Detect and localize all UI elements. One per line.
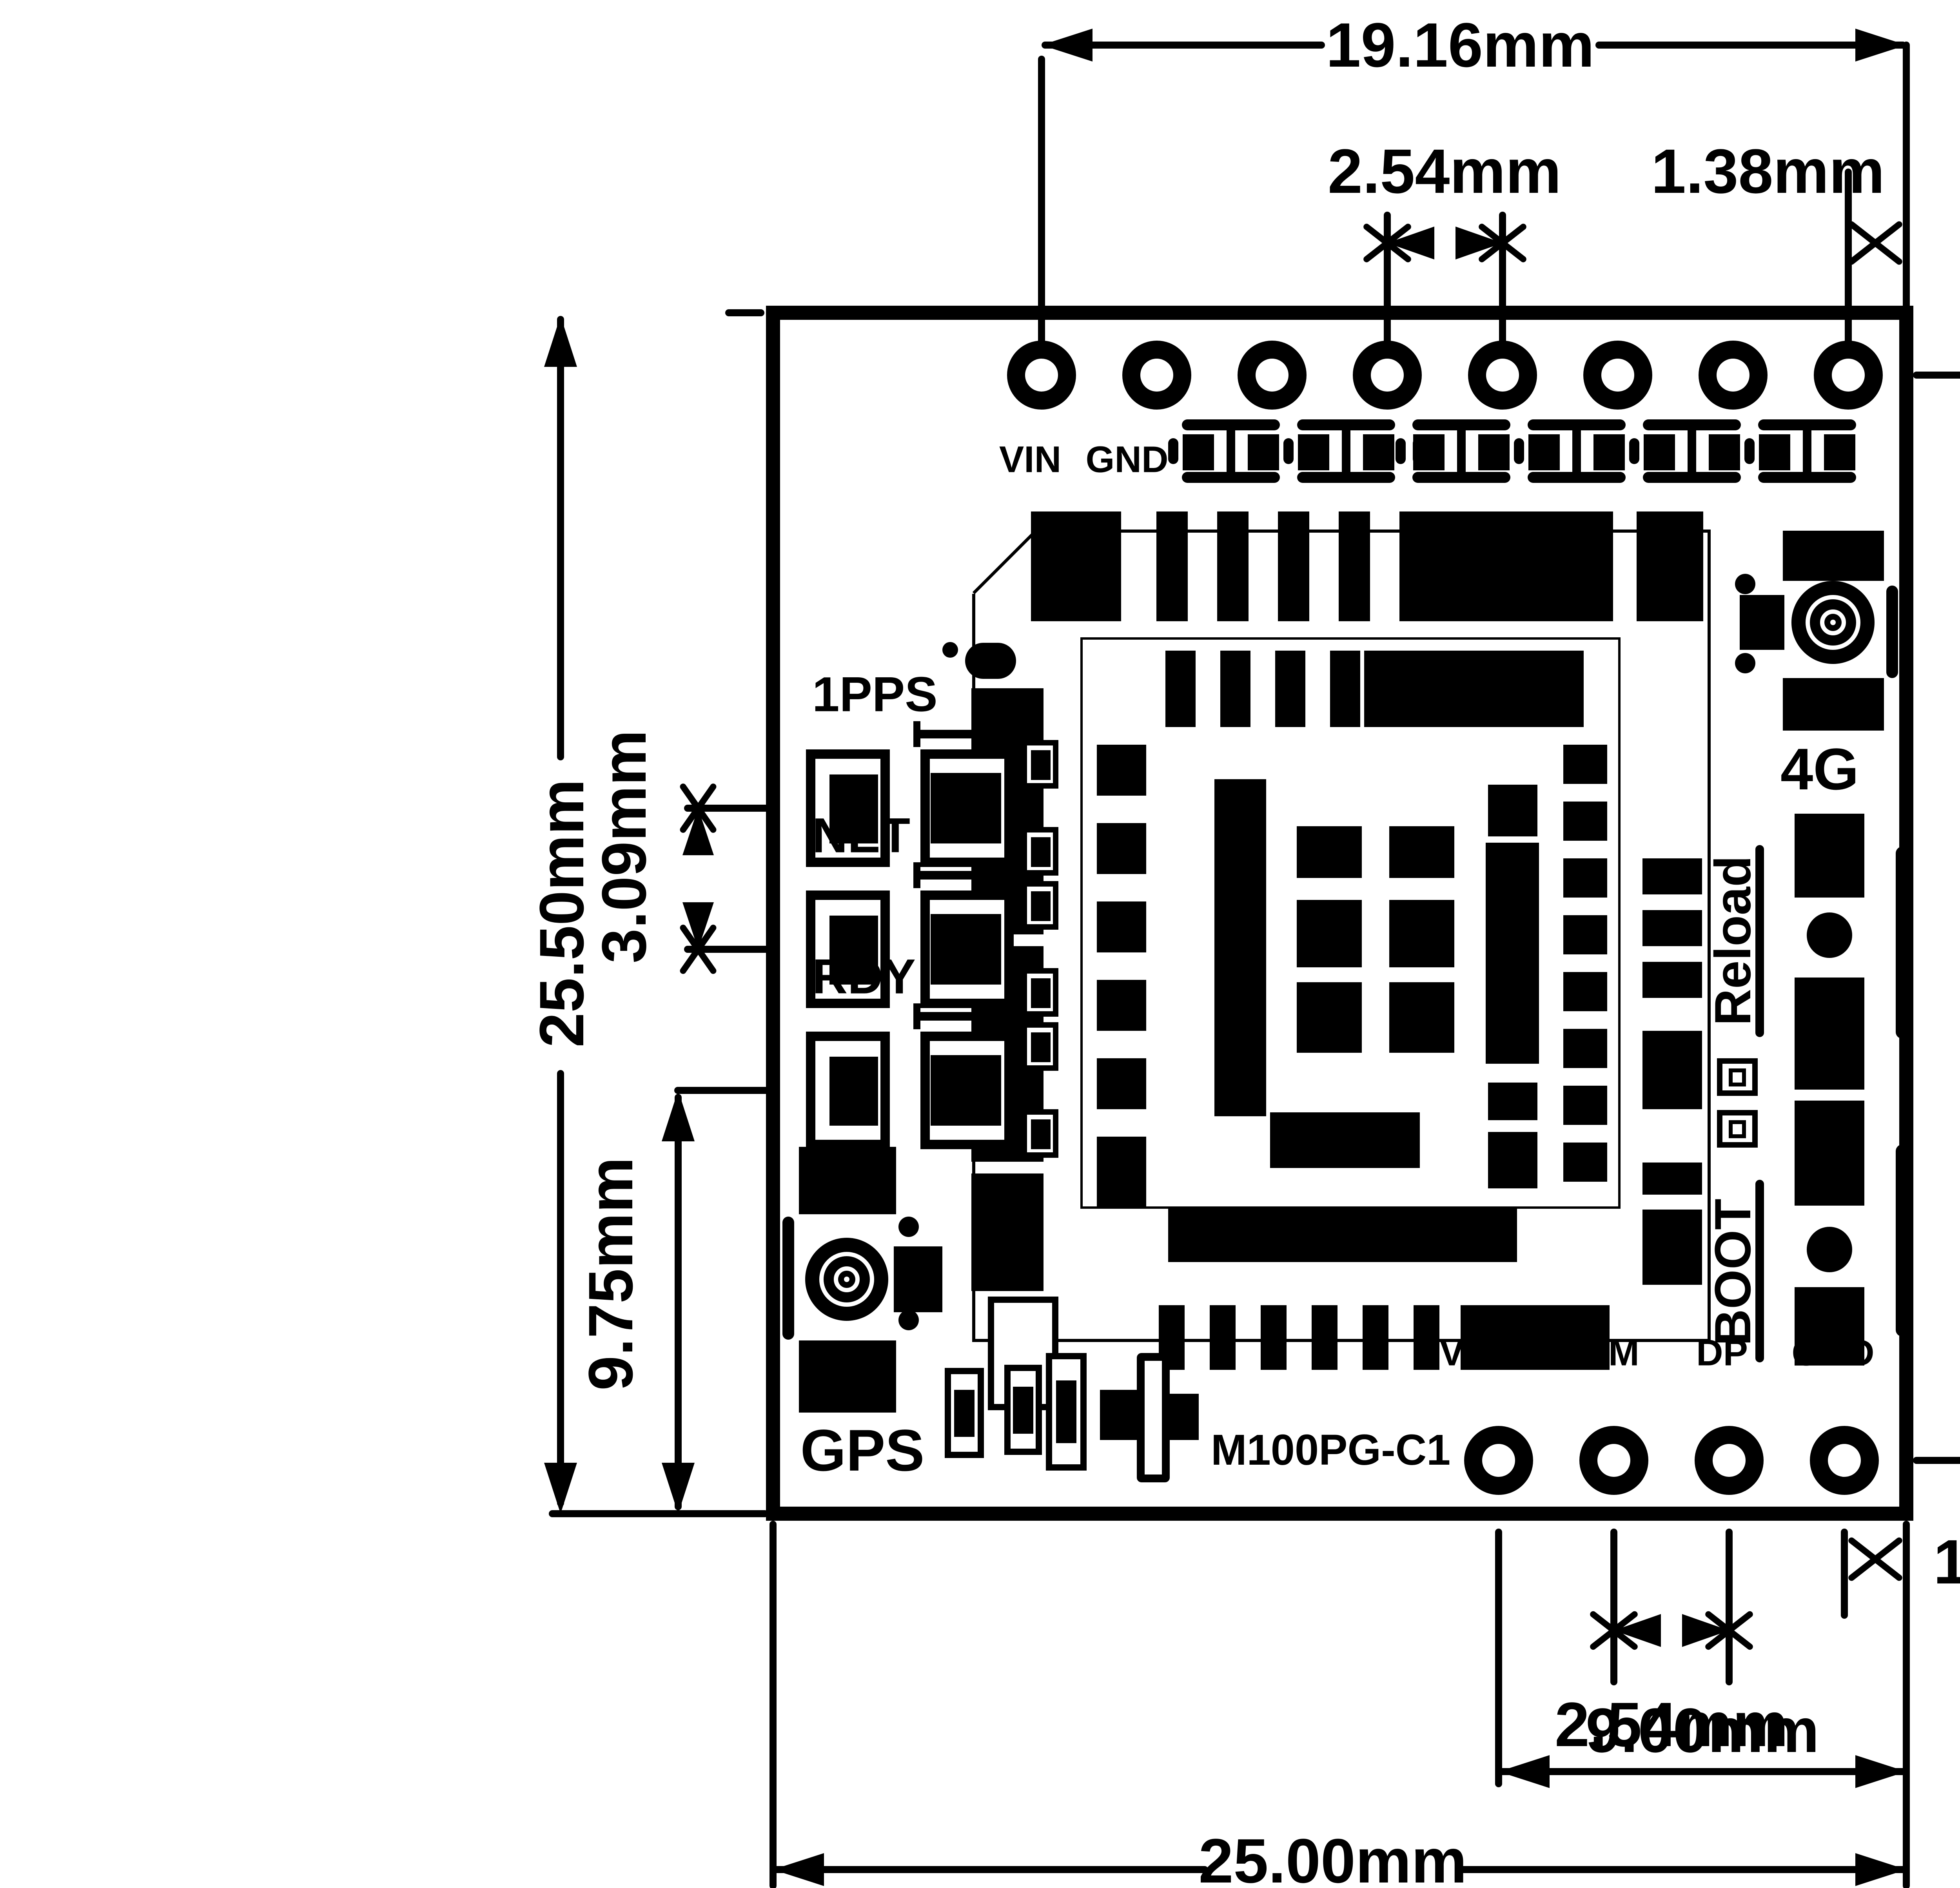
silk-square <box>1642 858 1702 894</box>
silk-tall-bar <box>1486 843 1539 1064</box>
passive-fill <box>1031 837 1051 867</box>
top-pad-6 <box>1583 341 1652 410</box>
vin-label: VIN <box>999 441 1061 479</box>
dim-arrow-left <box>773 1853 824 1886</box>
silk-bar <box>1278 511 1309 621</box>
vbus-label: VBUS <box>1439 1335 1543 1372</box>
bottom-pad-dp <box>1695 1426 1764 1495</box>
gps-pad-top <box>799 1147 896 1214</box>
dim-arrow-up <box>682 808 714 855</box>
top-pad-1-vin <box>1007 341 1076 410</box>
qfp-pad-left <box>1097 1058 1146 1109</box>
gps-label: GPS <box>800 1421 925 1480</box>
bottom-pad-vbus <box>1464 1426 1533 1495</box>
silk-square <box>1642 962 1702 998</box>
silk-square <box>1642 1163 1702 1195</box>
boot-underline <box>1755 1180 1764 1362</box>
silk-rect <box>1168 1206 1517 1262</box>
gps-center-hole <box>844 1277 849 1282</box>
passive-fill <box>1031 891 1051 921</box>
dim-arrow-right <box>1855 1755 1906 1788</box>
silk-bar <box>1637 511 1668 621</box>
ext-line <box>1913 1457 1960 1464</box>
dim-arrow-right <box>1682 1614 1729 1647</box>
grid-square <box>1297 826 1362 878</box>
switch-passive-fill <box>1013 1387 1033 1434</box>
silk-tall-bar <box>1214 779 1266 1116</box>
top-pad-5 <box>1468 341 1537 410</box>
led-arrow-tick <box>913 721 920 747</box>
silk-rect <box>1642 1210 1702 1285</box>
grid-square <box>1297 982 1362 1053</box>
dim-3-09: 3.09mm <box>593 730 655 963</box>
top-pad-3 <box>1238 341 1307 410</box>
dim-line <box>1499 1768 1906 1775</box>
qfp-pad-right <box>1563 802 1607 841</box>
dim-25-50: 25.50mm <box>530 779 593 1048</box>
passive-fill <box>1031 1032 1051 1062</box>
silk-pill <box>965 643 1016 679</box>
qfp-pad-right <box>1563 858 1607 898</box>
silk-rect <box>1031 511 1121 621</box>
ext-line <box>1903 1521 1910 1888</box>
silk-rect <box>1399 511 1613 621</box>
dim-arrow-up <box>544 316 577 367</box>
silk-bar <box>1261 1305 1287 1370</box>
dim-19-16: 19.16mm <box>1326 14 1595 76</box>
silk-oval <box>1514 438 1524 464</box>
silk-square <box>1642 910 1702 946</box>
silk-bar <box>1217 511 1249 621</box>
grid-square <box>1389 826 1454 878</box>
qfp-pad-right <box>1563 745 1607 784</box>
led-arrow-tick <box>913 1003 920 1029</box>
top-pad-2-gnd <box>1122 341 1191 410</box>
dim-arrow-left <box>1387 227 1434 259</box>
resistor-pad <box>1593 434 1625 470</box>
resistor-pad <box>1298 434 1329 470</box>
qfp-pad-right <box>1563 1029 1607 1068</box>
module-name-label: M100PG-C1 <box>1211 1429 1450 1472</box>
g4-dot <box>1735 653 1755 673</box>
switch-nub <box>1170 1394 1199 1440</box>
resistor-pad <box>1709 434 1740 470</box>
gps-dot <box>898 1217 919 1237</box>
dim-arrow-right <box>1855 1853 1906 1886</box>
silk-square <box>1488 1132 1537 1188</box>
dim-line <box>773 1866 1208 1873</box>
ext-line <box>1495 1529 1502 1787</box>
switch-passive-fill <box>954 1390 975 1437</box>
dim-line <box>557 316 564 760</box>
silk-oval <box>1168 438 1178 464</box>
top-pad-8 <box>1814 341 1883 410</box>
silk-oval <box>1283 438 1294 464</box>
silk-bar <box>1312 1305 1338 1370</box>
silk-bar <box>1156 511 1188 621</box>
dim-arrow-right <box>1855 29 1906 62</box>
qfp-pad-right <box>1563 1086 1607 1125</box>
dim-arrow-down <box>544 1463 577 1514</box>
ext-line <box>1845 169 1852 345</box>
resistor-pad <box>1248 434 1279 470</box>
silk-bar <box>1363 1305 1388 1370</box>
button-pad <box>1795 1101 1864 1206</box>
dp-label: DP <box>1696 1335 1748 1372</box>
silk-rect <box>1270 1112 1420 1168</box>
resistor-pad <box>1759 434 1790 470</box>
led-arrow-bar <box>913 871 980 880</box>
silk-dot <box>942 642 958 658</box>
button-cap-inner <box>1729 1068 1746 1086</box>
resistor-pad <box>1644 434 1675 470</box>
button-pad <box>1795 978 1864 1090</box>
silk-square <box>1488 1083 1537 1120</box>
resistor-stem <box>1227 423 1235 483</box>
resistor-stem <box>1688 423 1696 483</box>
pps-label: 1PPS <box>812 670 938 719</box>
silk-bar <box>1339 511 1370 621</box>
dim-2-54-top: 2.54mm <box>1328 140 1561 203</box>
g4-pad-top <box>1783 531 1884 581</box>
led-arrow-head <box>976 863 1004 887</box>
silk-oval <box>1744 438 1755 464</box>
dim-arrow-right <box>1455 227 1503 259</box>
qfp-pad-right <box>1563 1143 1607 1182</box>
switch-passive-fill <box>1056 1380 1076 1443</box>
silk-square <box>1488 785 1537 836</box>
led-arrow-bar <box>913 730 980 738</box>
passive-fill <box>1031 750 1051 780</box>
silk-rect <box>1364 651 1584 727</box>
led-arrow-bar <box>913 1012 980 1021</box>
passive-fill <box>1031 1119 1051 1149</box>
silk-bar <box>1165 651 1196 727</box>
ext-line <box>1913 372 1960 379</box>
gps-pad-right <box>894 1246 942 1312</box>
silk-bar <box>1330 651 1360 727</box>
silk-oval <box>1413 438 1423 464</box>
g4-center-hole <box>1830 620 1836 625</box>
grid-square <box>1389 900 1454 967</box>
qfp-pad-right <box>1563 915 1607 954</box>
silk-bar <box>1210 1305 1236 1370</box>
gps-edge-pill <box>782 1217 794 1340</box>
ext-line <box>1610 1529 1617 1685</box>
resistor-pad <box>1824 434 1855 470</box>
dim-line <box>675 1094 682 1510</box>
g4-pad-bottom <box>1783 678 1884 731</box>
button-cap-inner <box>1729 1120 1746 1138</box>
led-arrow-tick <box>913 862 920 888</box>
grid-square <box>1389 982 1454 1053</box>
dim-arrow-up <box>662 1090 695 1141</box>
reload-underline <box>1755 845 1764 1037</box>
qfp-pad-right <box>1563 972 1607 1011</box>
ext-line <box>725 309 764 316</box>
passive-fill <box>1031 978 1051 1008</box>
ext-line <box>769 1521 777 1888</box>
led-fill <box>931 1055 1001 1126</box>
button-pad <box>1795 814 1864 898</box>
top-pad-7 <box>1699 341 1768 410</box>
silk-oval <box>1629 438 1639 464</box>
ext-line <box>1841 1529 1848 1619</box>
dim-arrow-left <box>1499 1755 1550 1788</box>
resistor-stem <box>1803 423 1811 483</box>
resistor-stem <box>1342 423 1350 483</box>
gps-dot <box>898 1310 919 1330</box>
dim-line <box>557 1070 564 1507</box>
pcb-dimension-drawing: VIN GND <box>0 0 1960 1888</box>
dim-9-00: 9.00mm <box>1586 1699 1819 1762</box>
dm-label: DM <box>1581 1335 1639 1372</box>
dim-arrow-down <box>682 902 714 949</box>
dim-arrow-left <box>1614 1614 1661 1647</box>
g4-dot <box>1735 574 1755 594</box>
gnd-bottom-label: GND <box>1791 1335 1874 1372</box>
button-dot <box>1807 912 1852 958</box>
qfp-pad-left <box>1097 901 1146 952</box>
silk-bar <box>1275 651 1305 727</box>
qfp-pad-left <box>1097 745 1146 796</box>
led-fill <box>931 914 1001 985</box>
resistor-pad <box>1478 434 1510 470</box>
silk-rect <box>1642 1031 1702 1109</box>
g4-pad-left <box>1740 595 1784 650</box>
switch-pad <box>1100 1390 1138 1440</box>
resistor-pad <box>1528 434 1560 470</box>
bottom-pad-dm <box>1579 1426 1648 1495</box>
ext-line <box>549 1510 768 1517</box>
resistor-stem <box>1457 423 1466 483</box>
silk-bar <box>1414 1305 1439 1370</box>
switch-body <box>1137 1353 1170 1482</box>
button-dot <box>1807 1227 1852 1272</box>
resistor-pad <box>1363 434 1394 470</box>
top-pad-4 <box>1353 341 1422 410</box>
reload-label: Reload <box>1707 856 1758 1025</box>
dim-line <box>1459 1866 1906 1873</box>
led-fill <box>829 1057 878 1126</box>
gps-pad-bottom <box>799 1340 896 1413</box>
dim-arrow-left <box>1042 29 1093 62</box>
qfp-pad-left <box>1097 1137 1146 1207</box>
rdy-label: RDY <box>812 952 916 1001</box>
edge-pill <box>1896 847 1909 1039</box>
silk-rect <box>1668 511 1703 621</box>
dim-arrow-down <box>662 1463 695 1514</box>
dim-1-38-bottom: 1.38mm <box>1933 1531 1960 1593</box>
led-arrow-head <box>976 722 1004 746</box>
ext-line <box>1726 1529 1733 1685</box>
net-label: NET <box>812 811 910 860</box>
silk-bar <box>1220 651 1250 727</box>
dim-9-75: 9.75mm <box>579 1157 642 1391</box>
resistor-pad <box>1183 434 1214 470</box>
dim-25-00: 25.00mm <box>1199 1830 1467 1888</box>
led-fill <box>931 773 1001 843</box>
ext-line <box>1038 56 1045 346</box>
gnd-top-label: GND <box>1085 441 1168 479</box>
bottom-pad-gnd <box>1810 1426 1879 1495</box>
g4-edge-pill <box>1886 586 1898 678</box>
resistor-stem <box>1572 423 1581 483</box>
boot-label: BOOT <box>1707 1199 1758 1346</box>
grid-square <box>1297 900 1362 967</box>
silk-oval <box>1396 438 1406 464</box>
qfp-pad-left <box>1097 980 1146 1031</box>
edge-pill <box>1896 1144 1909 1337</box>
qfp-pad-left <box>1097 823 1146 874</box>
ext-line <box>1903 42 1910 316</box>
g4-label: 4G <box>1780 740 1859 798</box>
module-left-column <box>971 1173 1044 1291</box>
led-arrow-head <box>976 1005 1004 1028</box>
